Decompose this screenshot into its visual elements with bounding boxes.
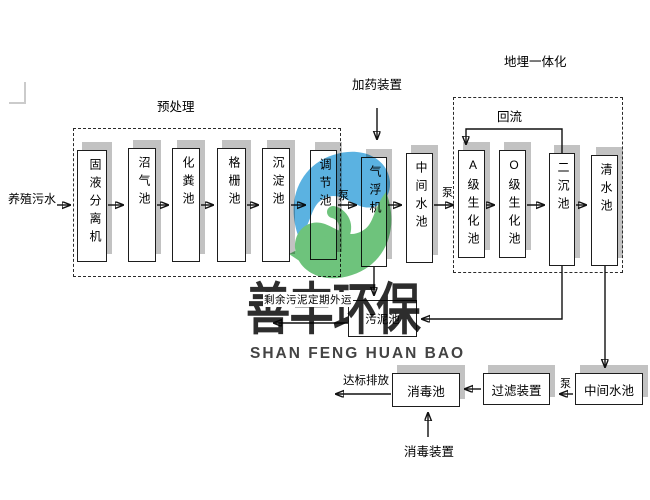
- pump-label-2: 泵: [442, 184, 453, 200]
- flow-connectors: [0, 0, 650, 500]
- integrated-label: 地埋一体化: [504, 51, 567, 70]
- arrow-secondary-to-sludge: [422, 266, 562, 319]
- disinfection-device-label: 消毒装置: [404, 441, 454, 460]
- pretreatment-label: 预处理: [157, 96, 195, 115]
- process-flow-diagram: 预处理 地埋一体化 回流 加药装置 养殖污水 泵 泵 泵 达标排放 消毒装置 固…: [0, 0, 650, 500]
- sludge-note-label: 剩余污泥定期外运: [263, 292, 353, 307]
- dosing-device-label: 加药装置: [352, 74, 402, 93]
- pump-label-3: 泵: [560, 375, 571, 391]
- discharge-label: 达标排放: [343, 372, 389, 388]
- pump-label-1: 泵: [338, 187, 349, 203]
- arrow-reflux-line: [466, 129, 562, 153]
- input-label: 养殖污水: [8, 190, 56, 207]
- reflux-label: 回流: [497, 106, 522, 125]
